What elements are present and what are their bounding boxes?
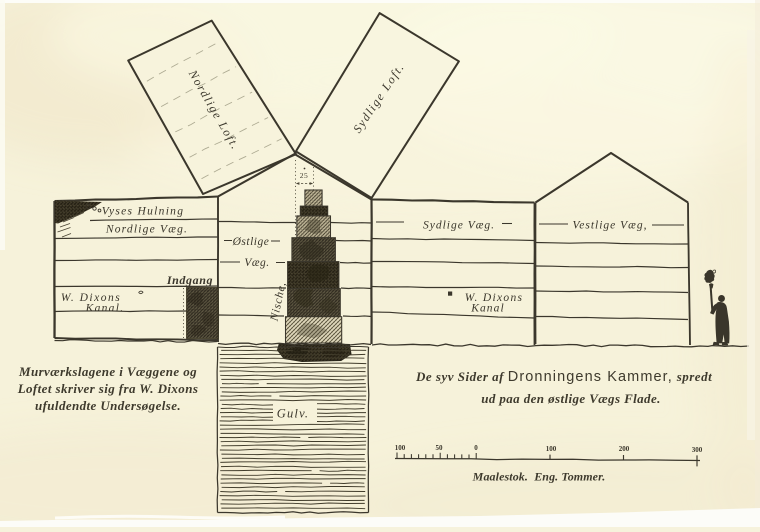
- svg-text:200: 200: [619, 445, 630, 453]
- svg-text:Loftet skriver sig fra W. Dixo: Loftet skriver sig fra W. Dixons: [17, 381, 199, 396]
- svg-text:300: 300: [692, 446, 703, 454]
- svg-text:Maalestok. Eng. Tommer.: Maalestok. Eng. Tommer.: [472, 470, 606, 484]
- svg-text:Kanal: Kanal: [470, 303, 505, 315]
- svg-text:Kanal.: Kanal.: [85, 303, 125, 315]
- svg-text:Vyses Hulning: Vyses Hulning: [102, 206, 185, 218]
- svg-text:100: 100: [395, 444, 406, 452]
- svg-text:ud paa den østlige Vægs Flade.: ud paa den østlige Vægs Flade.: [481, 391, 661, 406]
- svg-text:Indgang: Indgang: [166, 273, 213, 287]
- svg-text:Nordlige Væg.: Nordlige Væg.: [105, 224, 188, 236]
- svg-text:Vestlige Væg,: Vestlige Væg,: [573, 220, 648, 232]
- svg-text:Væg.: Væg.: [244, 257, 269, 269]
- svg-text:ufuldendte Undersøgelse.: ufuldendte Undersøgelse.: [35, 398, 181, 413]
- svg-text:50: 50: [436, 444, 444, 452]
- svg-text:De syv Sider af Dronningens Ka: De syv Sider af Dronningens Kammer, spre…: [415, 369, 712, 385]
- svg-text:0: 0: [474, 444, 478, 452]
- svg-text:25: 25: [300, 171, 309, 180]
- svg-text:Østlige: Østlige: [232, 236, 270, 248]
- svg-text:100: 100: [546, 445, 557, 453]
- svg-text:Gulv.: Gulv.: [277, 407, 310, 421]
- svg-text:Sydlige Væg.: Sydlige Væg.: [423, 220, 495, 232]
- svg-text:Murværkslagene i Væggene og: Murværkslagene i Væggene og: [18, 364, 197, 379]
